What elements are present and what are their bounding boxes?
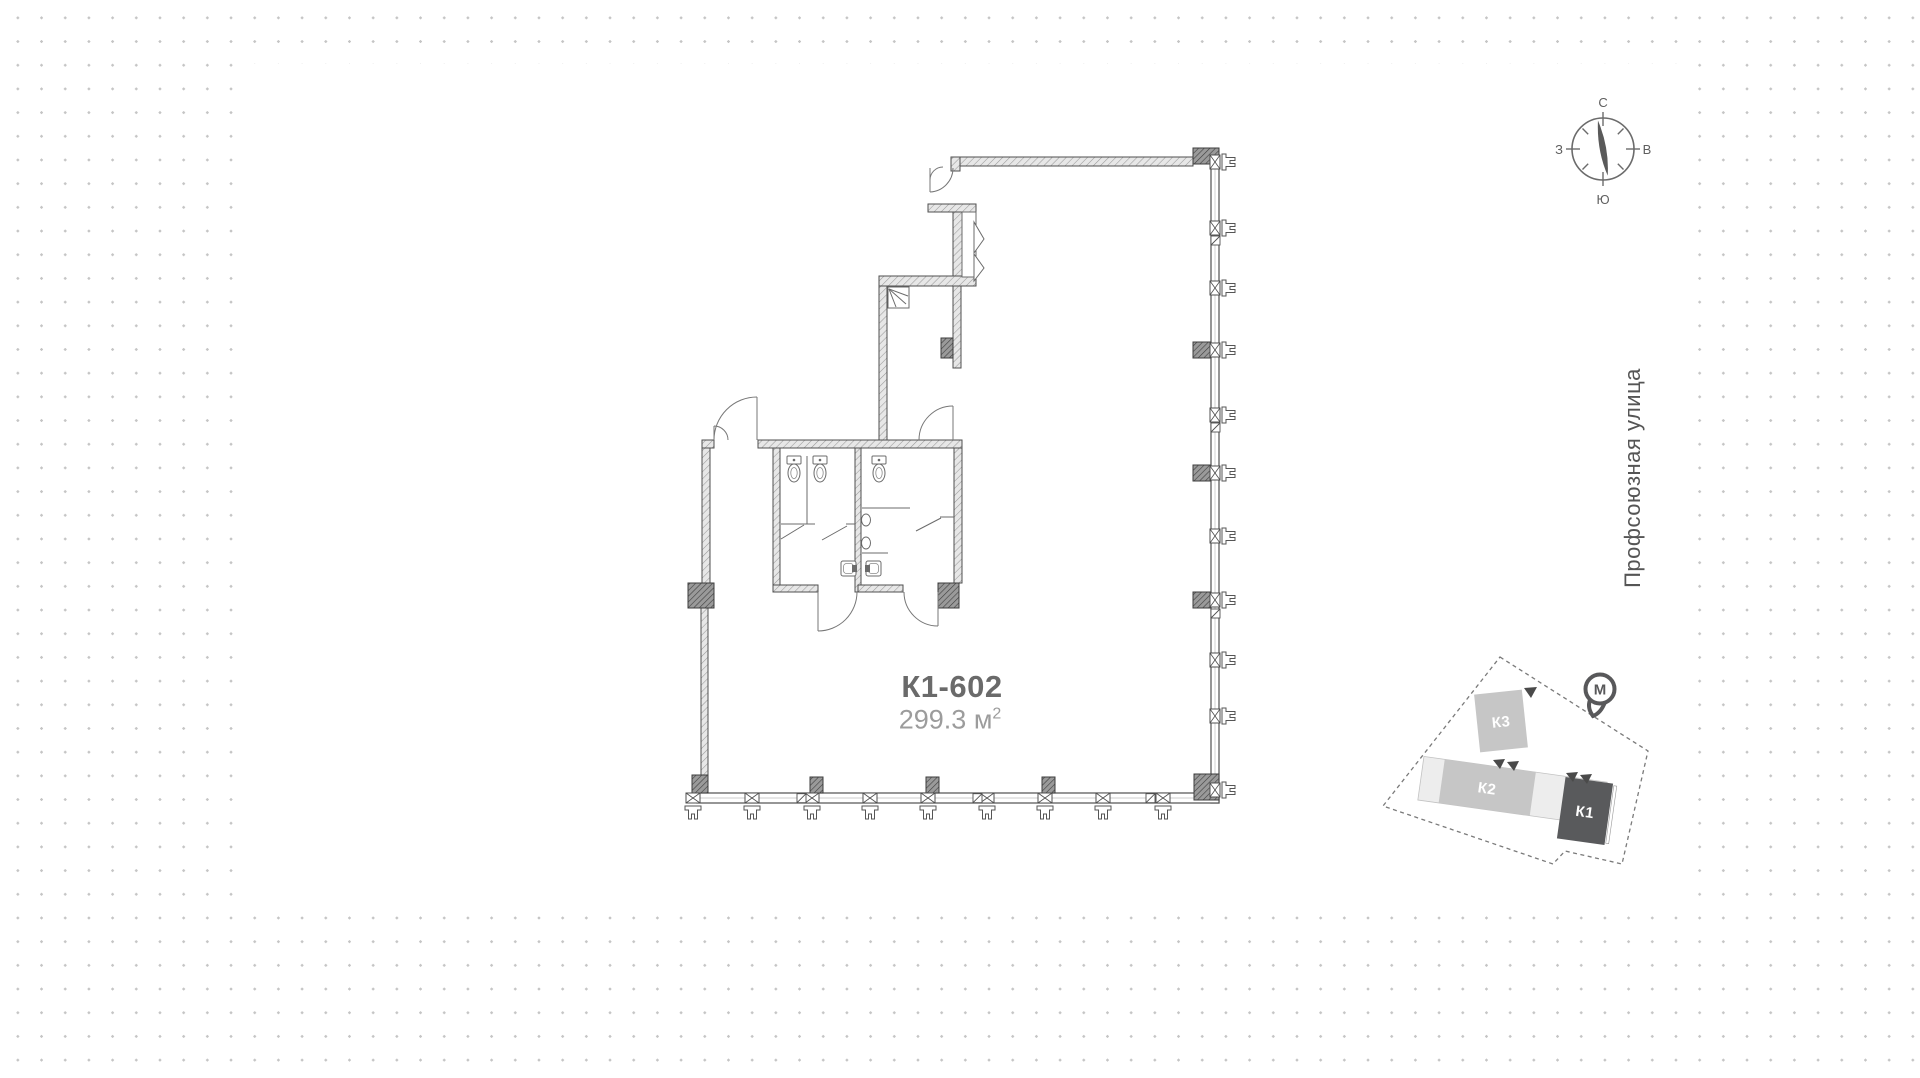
- minimap-label-k1: К1: [1574, 803, 1595, 822]
- metro-pin: М: [1586, 675, 1615, 717]
- ventilation-shaft: [888, 287, 909, 308]
- compass-west-label: З: [1555, 142, 1563, 157]
- minimap-label-k3: К3: [1491, 713, 1511, 732]
- metro-icon: М: [1594, 682, 1607, 699]
- unit-area-exponent: 2: [992, 706, 1001, 723]
- compass-needle: [1595, 120, 1611, 176]
- minimap-building-k1[interactable]: К1: [1557, 777, 1617, 846]
- minimap-label-k2: К2: [1477, 779, 1498, 798]
- minimap-building-k3[interactable]: К3: [1474, 690, 1528, 753]
- unit-code-label: К1-602: [901, 669, 1002, 705]
- street-name-label: Профсоюзная улица: [1620, 368, 1646, 588]
- wc-fixtures: [781, 456, 954, 576]
- compass: С В Ю З: [1555, 95, 1651, 207]
- entrance-marker: [1524, 687, 1537, 698]
- bottom-facade-brackets: [685, 793, 1171, 819]
- unit-area-label: 299.3 м2: [899, 705, 1002, 736]
- shaft-door: [962, 212, 984, 281]
- compass-south-label: Ю: [1596, 192, 1609, 207]
- bottom-window-wall: [697, 793, 1219, 803]
- unit-area-value: 299.3: [899, 705, 967, 735]
- unit-area-unit: м: [974, 705, 993, 735]
- site-minimap: К3 К2 К1 М: [1383, 657, 1648, 864]
- compass-east-label: В: [1643, 142, 1652, 157]
- door-arcs: [714, 167, 953, 631]
- compass-north-label: С: [1598, 95, 1607, 110]
